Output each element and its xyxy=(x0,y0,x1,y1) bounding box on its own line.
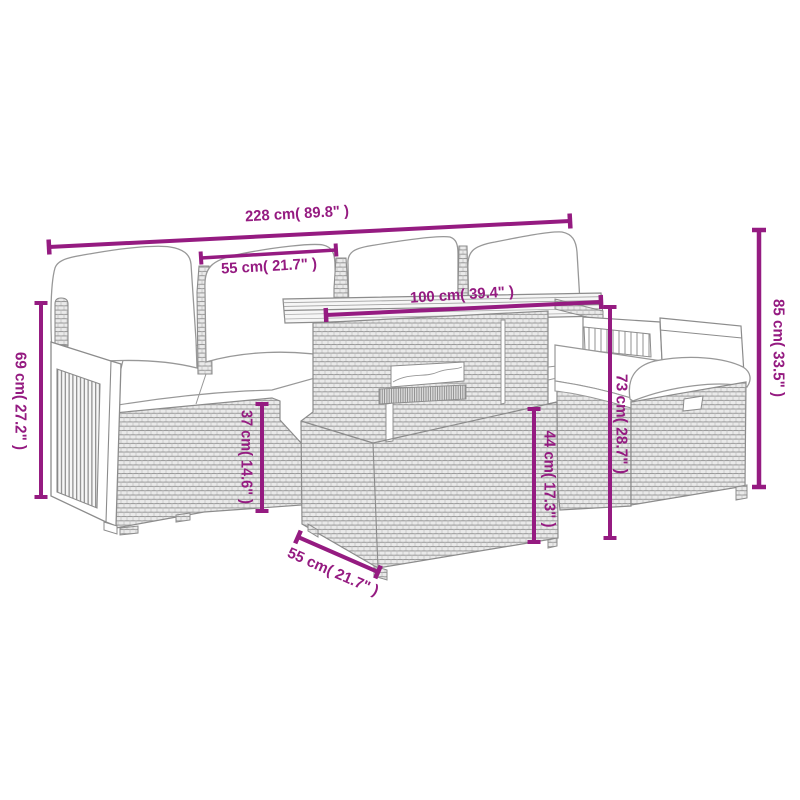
svg-text:69 cm( 27.2" ): 69 cm( 27.2" ) xyxy=(12,352,29,450)
svg-text:73 cm( 28.7" ): 73 cm( 28.7" ) xyxy=(613,374,630,474)
svg-text:44 cm( 17.3" ): 44 cm( 17.3" ) xyxy=(541,431,558,528)
svg-text:85 cm( 33.5" ): 85 cm( 33.5" ) xyxy=(770,299,787,397)
svg-text:37 cm( 14.6" ): 37 cm( 14.6" ) xyxy=(238,410,255,504)
